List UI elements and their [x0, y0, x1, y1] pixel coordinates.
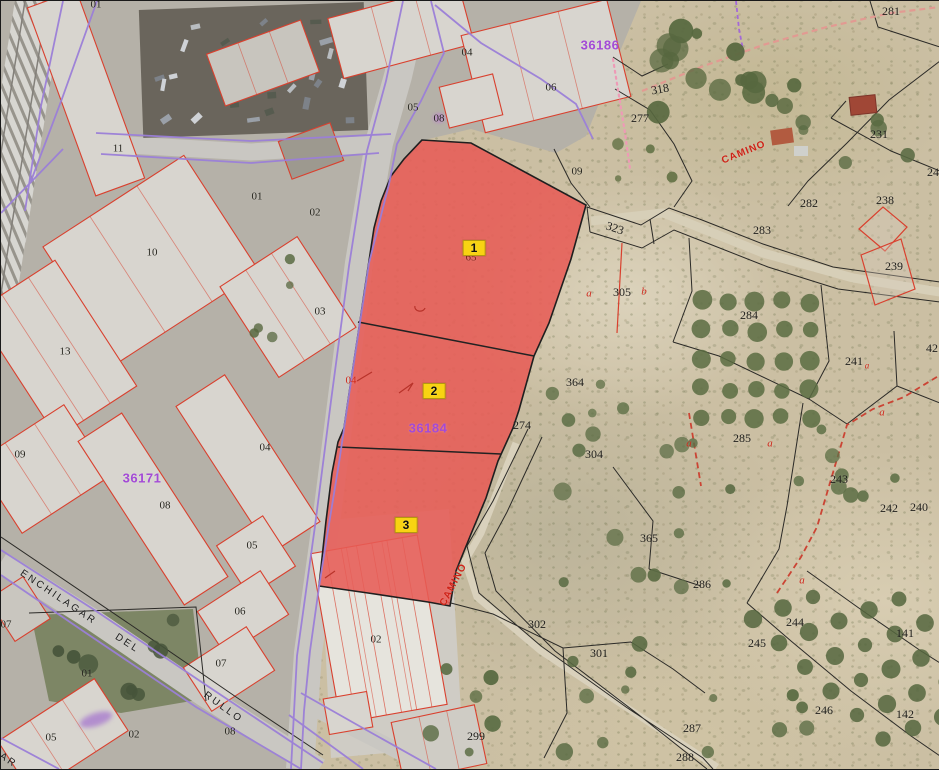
- rural-parcel-number-299-7: 299: [467, 730, 485, 742]
- urban-parcel-number-02-3: 02: [310, 208, 321, 219]
- urban-parcel-number-13-6: 13: [60, 347, 71, 358]
- urban-parcel-number-03-5: 03: [315, 307, 326, 318]
- rural-parcel-number-286-23: 286: [693, 578, 711, 590]
- rural-parcel-number-244-24: 244: [786, 616, 804, 628]
- street-name-enchilagar-0: ENCHILAGAR: [18, 569, 98, 628]
- subparcel-letter-a-5: a: [799, 576, 805, 587]
- rural-parcel-number-288-30: 288: [676, 751, 694, 763]
- zone-id-36186-0: 36186: [581, 39, 620, 52]
- urban-parcel-number-09-7: 09: [15, 450, 26, 461]
- urban-parcel-number-05-10: 05: [247, 541, 258, 552]
- urban-parcel-number-07-12: 07: [216, 659, 227, 670]
- rural-parcel-number-274-3: 274: [513, 419, 531, 431]
- urban-parcel-number-09-22: 09: [572, 167, 583, 178]
- subparcel-letter-a-2: a: [686, 439, 692, 450]
- urban-parcel-number-06-11: 06: [235, 607, 246, 618]
- rural-parcel-number-301-6: 301: [590, 647, 608, 659]
- rural-parcel-number-282-12: 282: [800, 197, 818, 209]
- zone-id-36184-1: 36184: [409, 422, 448, 435]
- street-name-rullo-2: RULLO: [202, 690, 245, 725]
- urban-parcel-number-02-15: 02: [129, 730, 140, 741]
- rural-parcel-number-242-19: 242: [880, 502, 898, 514]
- urban-parcel-number-01-13: 01: [82, 669, 93, 680]
- rural-parcel-number-246-28: 246: [815, 704, 833, 716]
- rural-parcel-number-238-14: 238: [876, 194, 894, 206]
- urban-parcel-number-04-8: 04: [260, 443, 271, 454]
- street-name-ar-3: AR: [0, 752, 19, 770]
- rural-parcel-number-365-22: 365: [640, 532, 658, 544]
- urban-parcel-number-08-16: 08: [225, 727, 236, 738]
- rural-parcel-number-245-25: 245: [748, 637, 766, 649]
- rural-parcel-number-240-18: 240: [910, 501, 928, 513]
- rural-parcel-number-283-13: 283: [753, 224, 771, 236]
- urban-parcel-number-08-20: 08: [434, 114, 445, 125]
- urban-parcel-number-05-19: 05: [408, 103, 419, 114]
- subparcel-letter-b-1: b: [641, 287, 647, 298]
- subparcel-letter-a-3: a: [767, 439, 773, 450]
- subparcel-letter-a-4: a: [879, 408, 885, 419]
- rural-parcel-number-302-5: 302: [528, 618, 546, 630]
- rural-parcel-number-142-27: 142: [896, 708, 914, 720]
- urban-parcel-number-02-23: 02: [371, 635, 382, 646]
- rural-parcel-number-42-32: 42: [926, 342, 938, 354]
- zone-id-36171-2: 36171: [123, 472, 162, 485]
- street-name-del-1: DEL: [113, 632, 141, 655]
- rural-parcel-number-305-1: 305: [613, 286, 631, 298]
- urban-parcel-number-01-0: 01: [91, 0, 102, 11]
- rural-parcel-number-287-29: 287: [683, 722, 701, 734]
- label-layer: 6504323305364274304302301299318277281231…: [1, 1, 939, 769]
- rural-parcel-number-304-4: 304: [585, 448, 603, 460]
- rural-parcel-number-323-0: 323: [605, 220, 626, 237]
- camino-label-camino-1: CAMINO: [721, 140, 768, 167]
- rural-parcel-number-364-2: 364: [566, 376, 584, 388]
- rural-parcel-number-24-31: 24: [927, 166, 939, 178]
- rural-parcel-number-241-17: 241: [845, 355, 863, 367]
- urban-parcel-number-01-2: 01: [252, 192, 263, 203]
- subparcel-letter-a-6: a: [865, 362, 870, 371]
- selected-parcel-badge-1-0[interactable]: 1: [463, 240, 486, 256]
- rural-parcel-number-141-26: 141: [896, 627, 914, 639]
- selected-parcel-badge-3-2[interactable]: 3: [395, 517, 418, 533]
- rural-parcel-number-318-8: 318: [650, 82, 670, 97]
- subparcel-letter-a-0: a: [586, 289, 592, 300]
- rural-parcel-number-281-10: 281: [882, 5, 900, 17]
- map-canvas[interactable]: 6504323305364274304302301299318277281231…: [0, 0, 939, 770]
- urban-parcel-number-08-9: 08: [160, 501, 171, 512]
- rural-parcel-number-239-15: 239: [885, 260, 903, 272]
- urban-parcel-number-10-4: 10: [147, 248, 158, 259]
- rural-parcel-number-243-20: 243: [830, 473, 848, 485]
- selected-parcel-badge-2-1[interactable]: 2: [423, 383, 446, 399]
- rural-parcel-number-231-11: 231: [870, 128, 888, 140]
- urban-parcel-number-05-14: 05: [46, 733, 57, 744]
- camino-label-camino-0: CAMINO: [439, 562, 470, 608]
- urban-parcel-number-04-18: 04: [462, 48, 473, 59]
- urban-parcel-number-06-21: 06: [546, 83, 557, 94]
- misc-label-04-1: 04: [346, 376, 357, 387]
- urban-parcel-number-11-1: 11: [113, 144, 124, 155]
- rural-parcel-number-277-9: 277: [631, 112, 649, 124]
- urban-parcel-number-07-17: 07: [1, 620, 12, 631]
- rural-parcel-number-285-21: 285: [733, 432, 751, 444]
- rural-parcel-number-284-16: 284: [740, 309, 758, 321]
